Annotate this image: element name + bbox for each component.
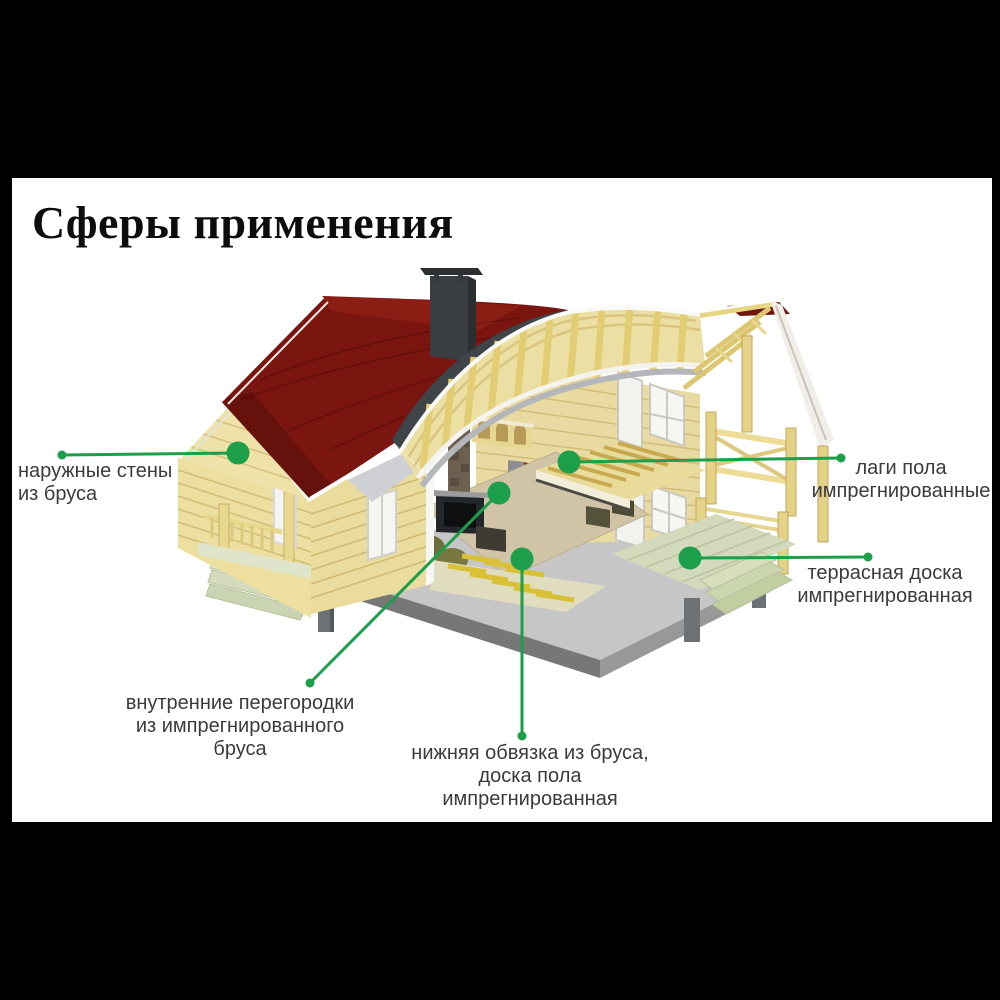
label-line: из импрегнированного	[117, 715, 363, 738]
label-line: нижняя обвязка из бруса,	[400, 742, 660, 765]
label-line: импрегнированные	[806, 480, 996, 503]
label-line: импрегнированная	[787, 585, 983, 608]
label-partitions: внутренние перегородки из импрегнированн…	[117, 692, 363, 761]
label-line: лаги пола	[806, 457, 996, 480]
label-floor-joists: лаги пола импрегнированные	[806, 457, 996, 503]
label-line: импрегнированная	[400, 788, 660, 811]
label-outer-walls: наружные стены из бруса	[18, 460, 218, 506]
label-bottom-frame: нижняя обвязка из бруса, доска пола импр…	[400, 742, 660, 811]
page: Сферы применения	[0, 0, 1000, 1000]
label-line: наружные стены	[18, 460, 218, 483]
label-line: террасная доска	[787, 562, 983, 585]
label-line: доска пола	[400, 765, 660, 788]
label-line: из бруса	[18, 483, 218, 506]
label-terrace: террасная доска импрегнированная	[787, 562, 983, 608]
label-line: бруса	[117, 738, 363, 761]
label-line: внутренние перегородки	[117, 692, 363, 715]
